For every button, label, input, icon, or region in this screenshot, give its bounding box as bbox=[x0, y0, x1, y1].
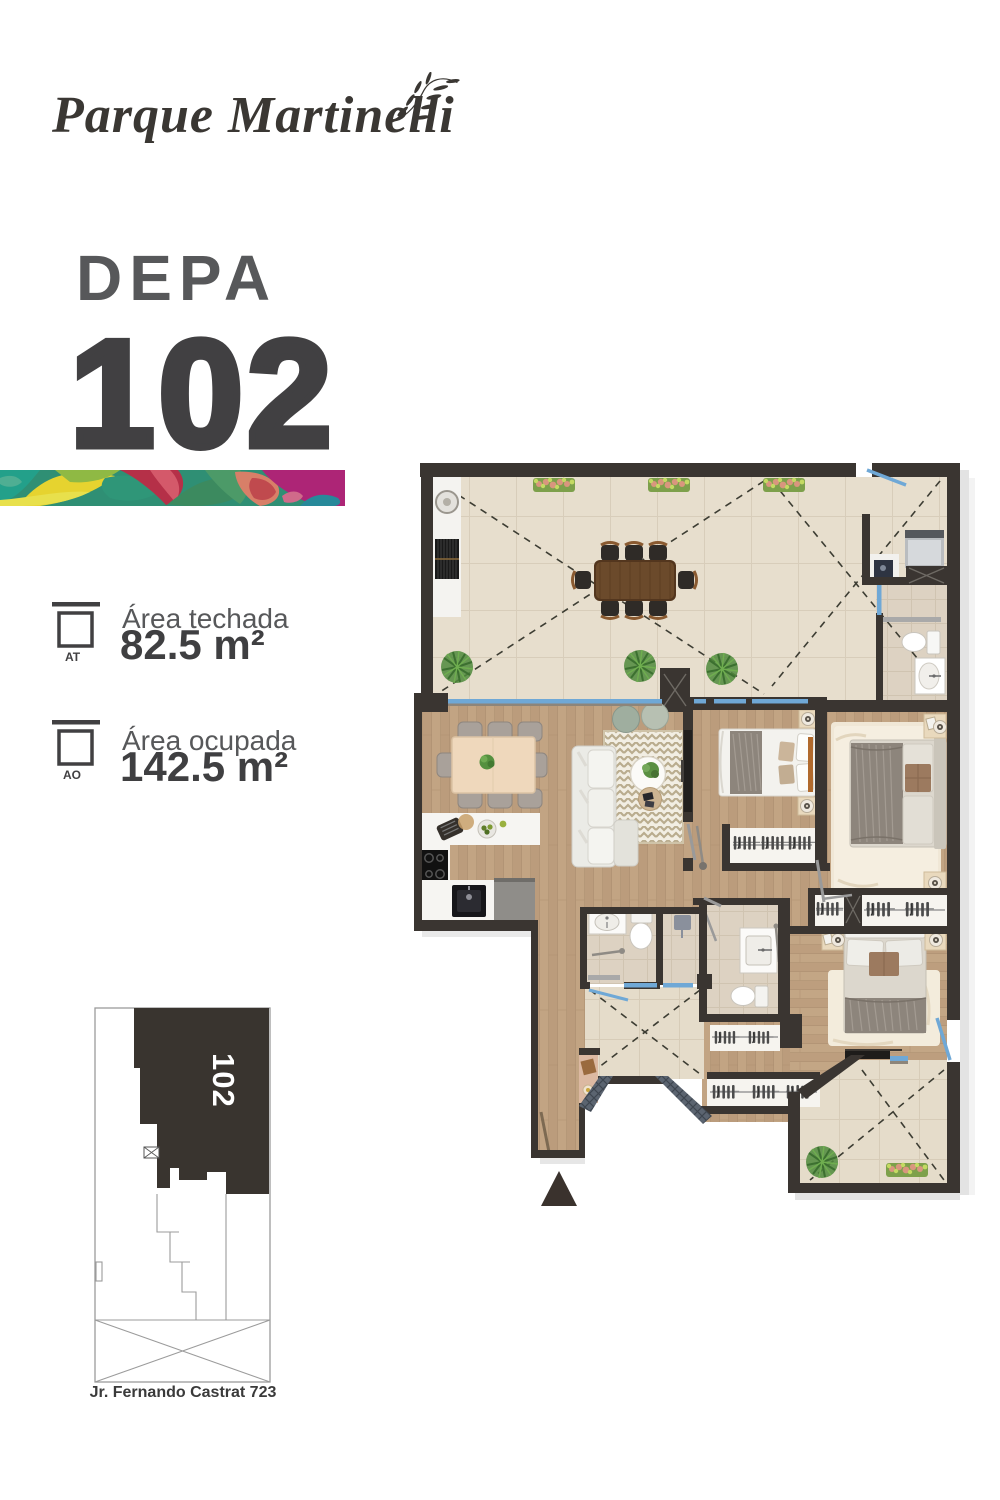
svg-text:102: 102 bbox=[206, 1053, 241, 1108]
